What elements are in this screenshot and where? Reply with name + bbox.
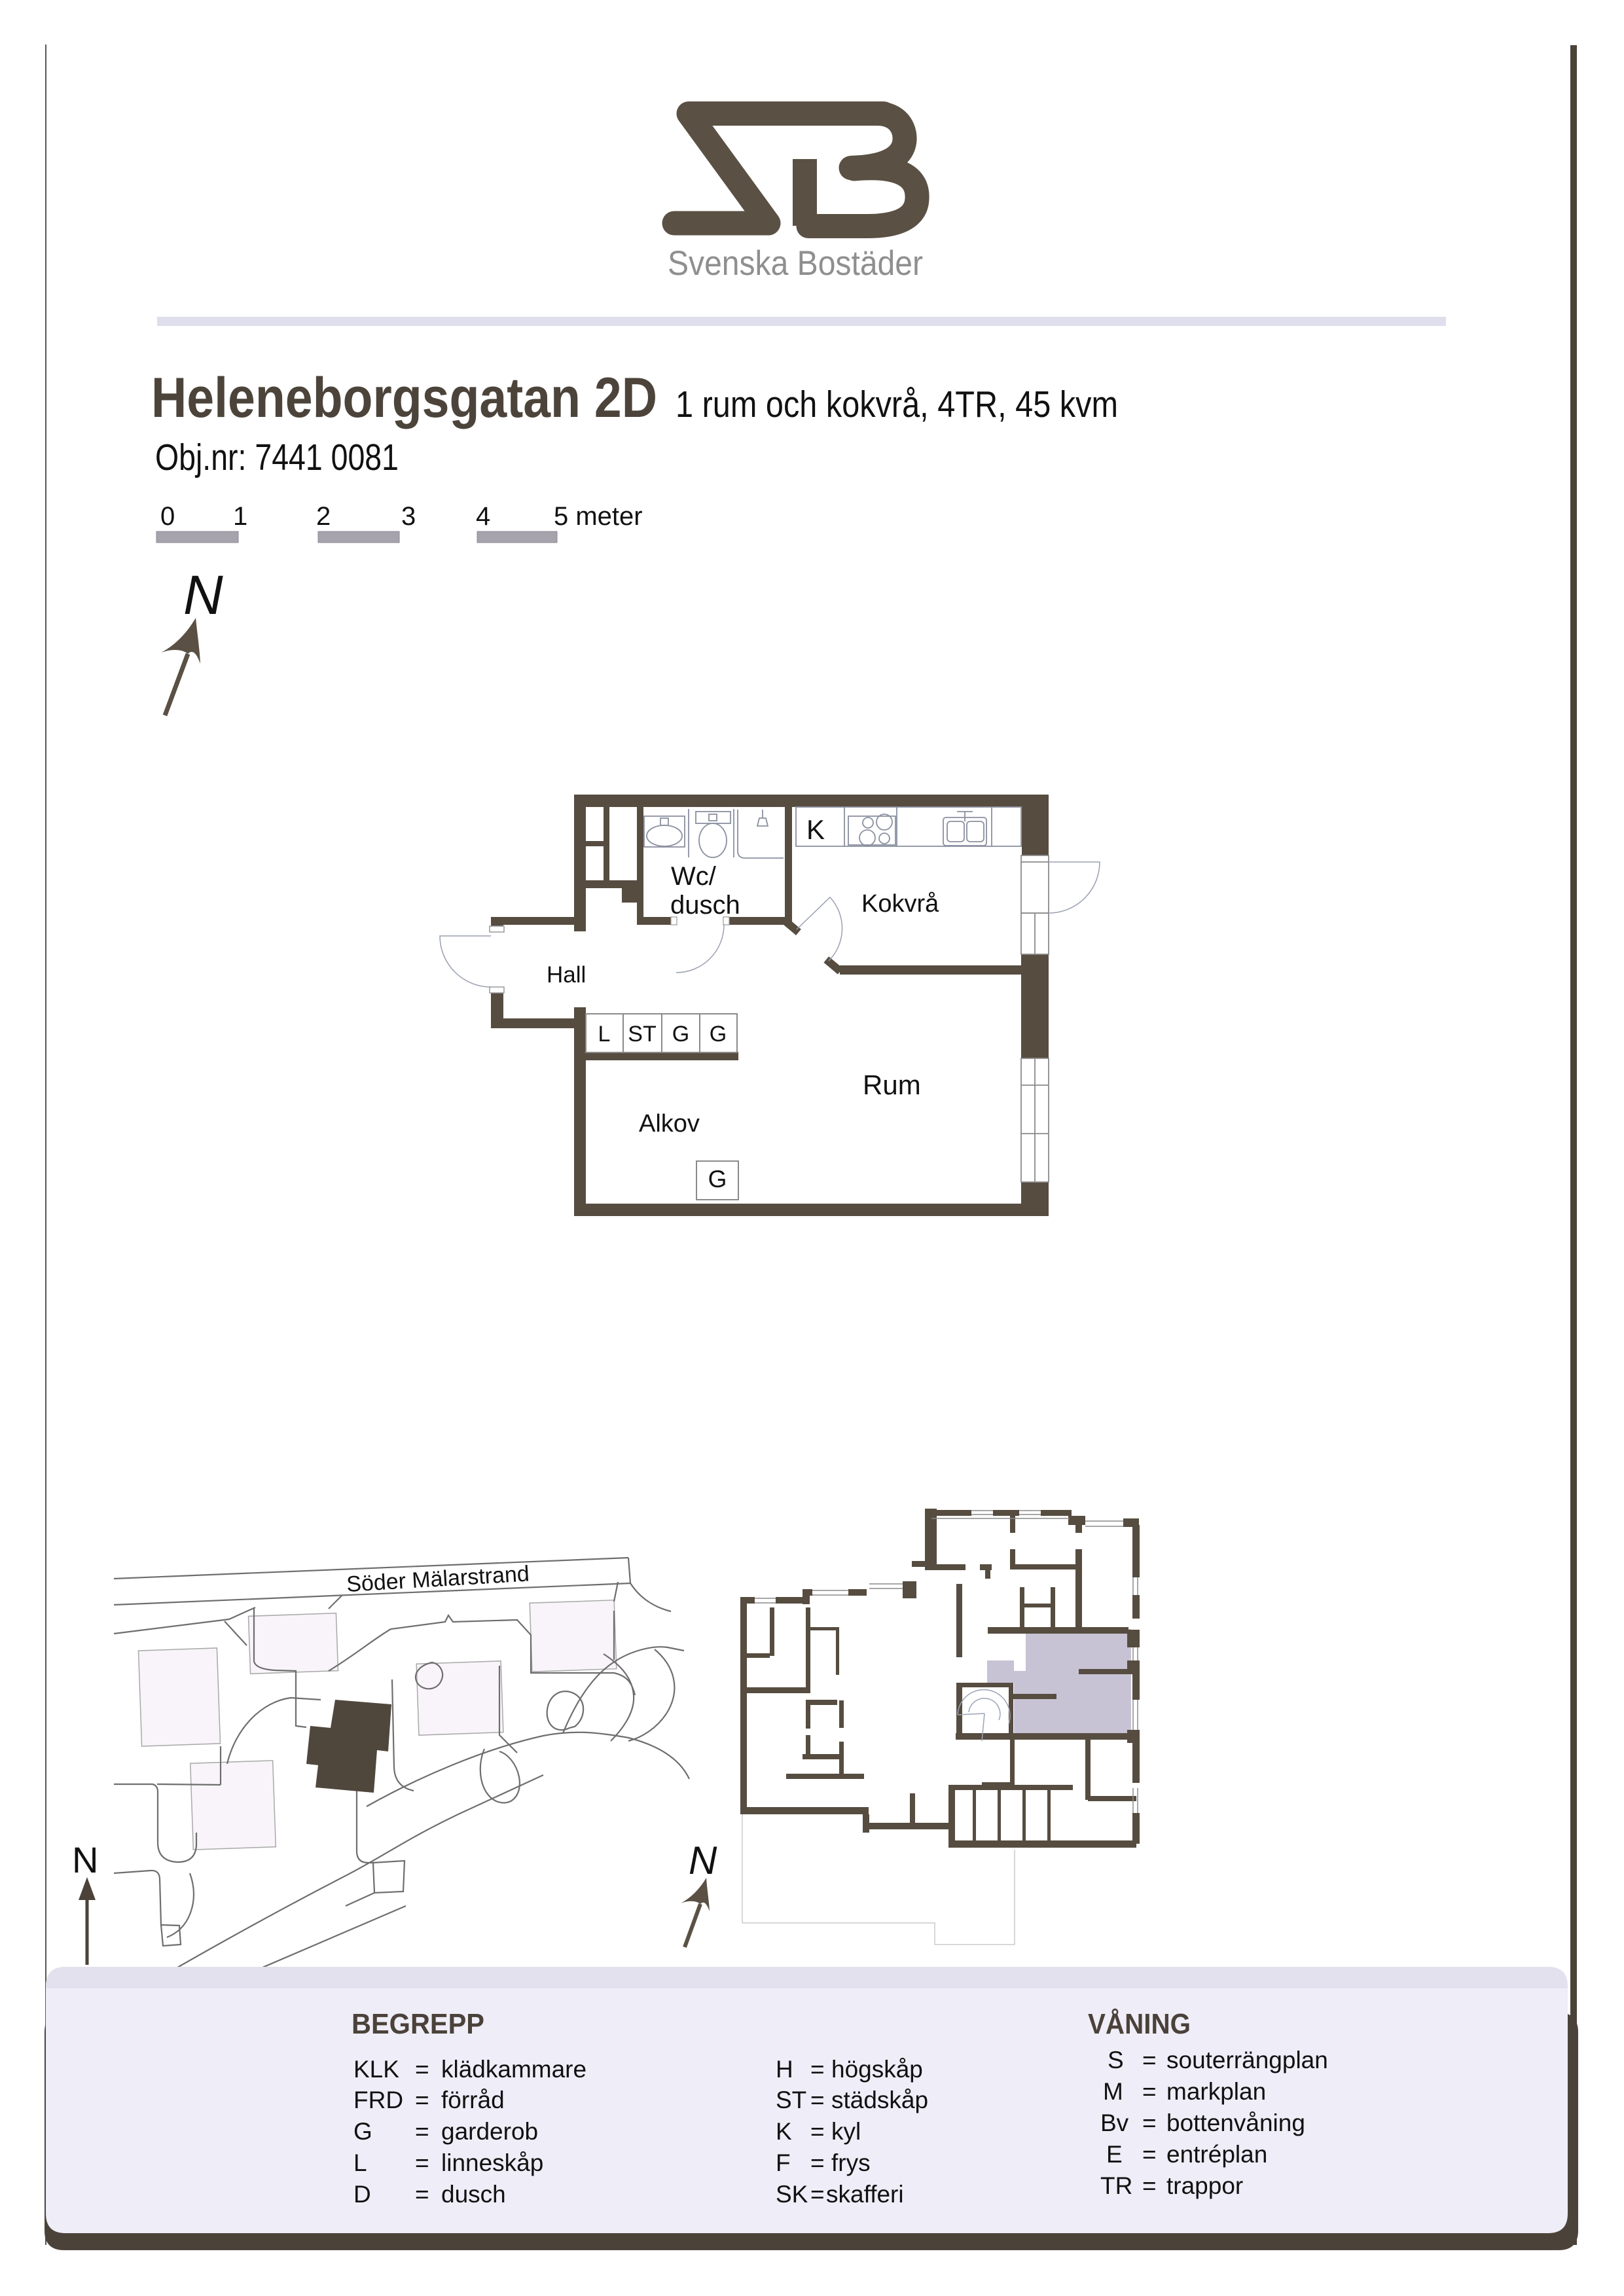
svg-text:2: 2: [316, 502, 331, 531]
svg-text:souterrängplan: souterrängplan: [1166, 2047, 1328, 2073]
svg-text:högskåp: högskåp: [831, 2056, 923, 2083]
svg-text:bottenvåning: bottenvåning: [1166, 2109, 1305, 2136]
svg-text:frys: frys: [831, 2149, 871, 2176]
svg-text:=: =: [810, 2087, 825, 2113]
svg-text:Rum: Rum: [863, 1069, 921, 1100]
svg-text:KLK: KLK: [353, 2056, 399, 2083]
svg-text:Obj.nr: 7441 0081: Obj.nr: 7441 0081: [155, 437, 399, 478]
svg-text:N: N: [689, 1839, 717, 1882]
svg-text:L: L: [353, 2149, 367, 2176]
svg-text:BEGREPP: BEGREPP: [352, 2008, 484, 2040]
svg-text:SK: SK: [776, 2181, 808, 2208]
svg-text:5 meter: 5 meter: [554, 502, 643, 531]
svg-text:L: L: [598, 1022, 611, 1047]
svg-text:=: =: [415, 2181, 429, 2208]
svg-text:ST: ST: [628, 1022, 656, 1047]
svg-text:1: 1: [233, 502, 247, 531]
svg-text:=: =: [415, 2118, 429, 2145]
svg-text:1 rum och kokvrå, 4TR, 45 kvm: 1 rum och kokvrå, 4TR, 45 kvm: [676, 384, 1118, 425]
svg-text:Alkov: Alkov: [639, 1110, 700, 1138]
svg-text:TR: TR: [1100, 2172, 1132, 2199]
svg-text:H: H: [776, 2056, 793, 2083]
svg-text:dusch: dusch: [670, 891, 740, 920]
svg-text:förråd: förråd: [441, 2087, 505, 2113]
svg-text:städskåp: städskåp: [831, 2087, 928, 2113]
svg-text:G: G: [708, 1166, 727, 1193]
svg-text:skafferi: skafferi: [826, 2181, 904, 2208]
svg-text:S: S: [1108, 2047, 1124, 2073]
svg-text:E: E: [1106, 2141, 1123, 2168]
svg-text:FRD: FRD: [353, 2087, 403, 2113]
svg-text:N: N: [72, 1839, 98, 1880]
svg-text:Bv: Bv: [1100, 2109, 1129, 2136]
svg-text:N: N: [183, 564, 223, 626]
svg-text:trappor: trappor: [1166, 2172, 1243, 2199]
svg-text:Kokvrå: Kokvrå: [861, 890, 939, 918]
svg-text:=: =: [415, 2149, 429, 2176]
svg-text:Svenska Bostäder: Svenska Bostäder: [668, 244, 923, 283]
svg-text:Heleneborgsgatan 2D: Heleneborgsgatan 2D: [151, 367, 657, 429]
svg-text:4: 4: [476, 502, 490, 531]
svg-text:G: G: [353, 2118, 372, 2145]
svg-text:=: =: [1142, 2047, 1157, 2073]
svg-text:ST: ST: [776, 2087, 806, 2113]
svg-text:entréplan: entréplan: [1166, 2141, 1267, 2168]
svg-text:=: =: [415, 2056, 429, 2083]
svg-text:D: D: [353, 2181, 371, 2208]
svg-text:=: =: [1142, 2141, 1157, 2168]
svg-text:dusch: dusch: [441, 2181, 506, 2208]
svg-text:G: G: [710, 1022, 727, 1047]
svg-text:G: G: [672, 1022, 689, 1047]
svg-text:=: =: [810, 2149, 825, 2176]
svg-text:=: =: [1142, 2172, 1157, 2199]
svg-text:=: =: [415, 2087, 429, 2113]
svg-text:garderob: garderob: [441, 2118, 538, 2145]
svg-text:klädkammare: klädkammare: [441, 2056, 586, 2083]
svg-text:Wc/: Wc/: [671, 862, 717, 891]
svg-text:=: =: [810, 2056, 825, 2083]
svg-text:markplan: markplan: [1166, 2078, 1266, 2105]
svg-text:M: M: [1103, 2078, 1123, 2105]
svg-text:Hall: Hall: [547, 962, 586, 988]
svg-text:kyl: kyl: [831, 2118, 861, 2145]
svg-text:=: =: [810, 2181, 825, 2208]
svg-text:0: 0: [160, 502, 175, 531]
svg-text:=: =: [1142, 2078, 1157, 2105]
svg-text:VÅNING: VÅNING: [1088, 2008, 1191, 2040]
svg-text:linneskåp: linneskåp: [441, 2149, 543, 2176]
svg-text:K: K: [806, 814, 825, 845]
svg-text:3: 3: [401, 502, 416, 531]
svg-text:F: F: [776, 2149, 791, 2176]
svg-text:=: =: [810, 2118, 825, 2145]
svg-text:=: =: [1142, 2109, 1157, 2136]
svg-text:K: K: [776, 2118, 792, 2145]
